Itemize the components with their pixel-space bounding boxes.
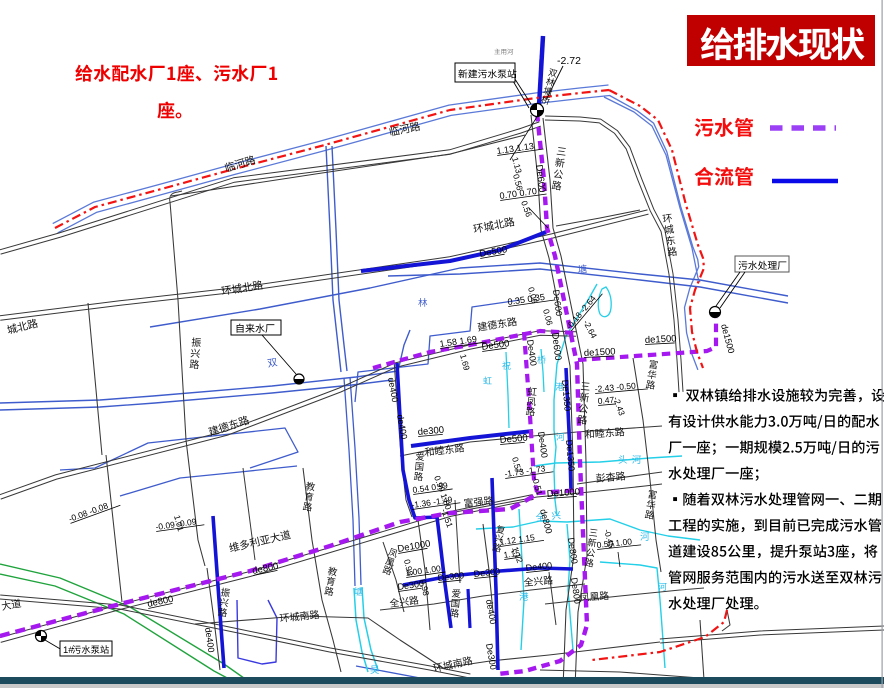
- svg-text:1#: 1#: [63, 645, 74, 656]
- svg-text:-2.72: -2.72: [557, 55, 581, 67]
